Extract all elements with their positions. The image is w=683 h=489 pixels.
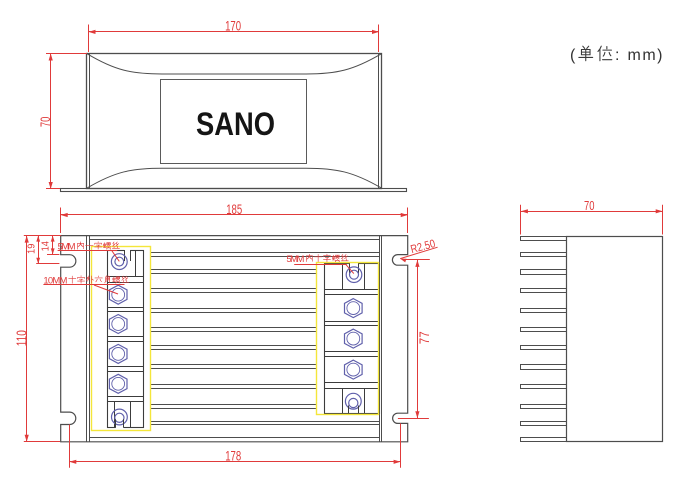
- svg-text::: :: [615, 47, 619, 64]
- svg-text:70: 70: [584, 198, 595, 213]
- svg-text:19: 19: [25, 244, 37, 254]
- svg-text:77: 77: [416, 331, 432, 344]
- svg-text:70: 70: [38, 117, 53, 128]
- svg-text:14: 14: [39, 241, 51, 251]
- svg-text:178: 178: [225, 447, 241, 463]
- svg-text:SANO: SANO: [196, 106, 275, 142]
- svg-text:170: 170: [225, 17, 241, 33]
- svg-text:(: (: [570, 47, 576, 64]
- svg-text:mm): mm): [628, 47, 663, 64]
- svg-text:5MM: 5MM: [286, 254, 304, 265]
- svg-text:110: 110: [14, 330, 30, 346]
- svg-text:185: 185: [226, 201, 242, 217]
